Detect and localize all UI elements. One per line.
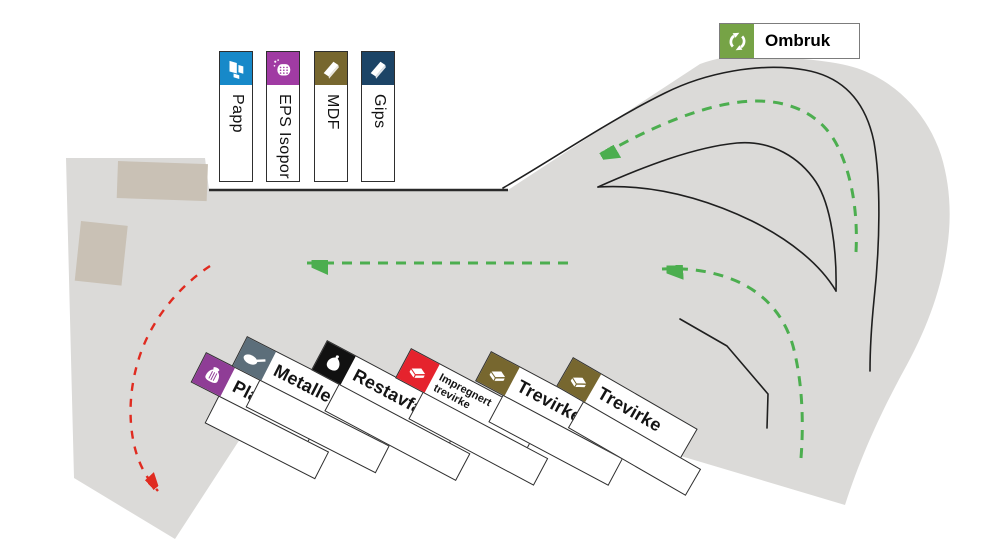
station-label-ombruk: Ombruk — [719, 23, 860, 59]
station-label-gips: Gips — [361, 51, 395, 182]
station-label-text: MDF — [323, 94, 341, 130]
foam-icon — [267, 52, 299, 85]
building — [75, 221, 128, 286]
cardboard-icon — [220, 52, 252, 85]
site-map-drawing — [0, 0, 983, 556]
site-map: Ombruk PappEPS IsoporMDFGips PlastMetall… — [0, 0, 983, 556]
board-icon — [362, 52, 394, 85]
recycle-icon — [720, 24, 754, 58]
station-label-papp: Papp — [219, 51, 253, 182]
station-label-text: Papp — [228, 94, 246, 133]
station-label-text: Gips — [370, 94, 388, 129]
board-icon — [315, 52, 347, 85]
building — [117, 161, 208, 201]
station-label-mdf: MDF — [314, 51, 348, 182]
station-label-text: EPS Isopor — [275, 94, 293, 179]
station-label-text: Ombruk — [754, 24, 830, 58]
station-label-eps-isopor: EPS Isopor — [266, 51, 300, 182]
